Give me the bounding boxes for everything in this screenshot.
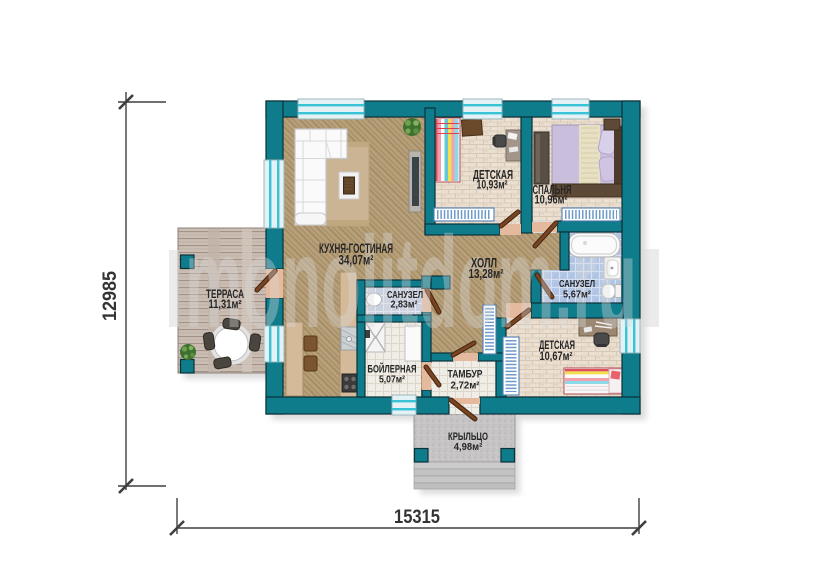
svg-text:11,31м²: 11,31м² — [209, 299, 242, 311]
svg-text:5,67м²: 5,67м² — [563, 289, 591, 301]
svg-text:2,72м²: 2,72м² — [451, 380, 480, 392]
svg-text:10,96м²: 10,96м² — [535, 193, 568, 207]
svg-text:34,07м²: 34,07м² — [339, 253, 374, 268]
svg-text:10,93м²: 10,93м² — [477, 178, 508, 192]
svg-text:13,28м²: 13,28м² — [469, 266, 505, 281]
svg-text:4,98м²: 4,98м² — [454, 441, 483, 453]
svg-text:5,07м²: 5,07м² — [379, 374, 405, 386]
svg-text:2,83м²: 2,83м² — [391, 300, 419, 311]
svg-text:10,67м²: 10,67м² — [540, 351, 573, 363]
svg-text:12985: 12985 — [100, 271, 121, 321]
svg-text:15315: 15315 — [394, 507, 440, 528]
